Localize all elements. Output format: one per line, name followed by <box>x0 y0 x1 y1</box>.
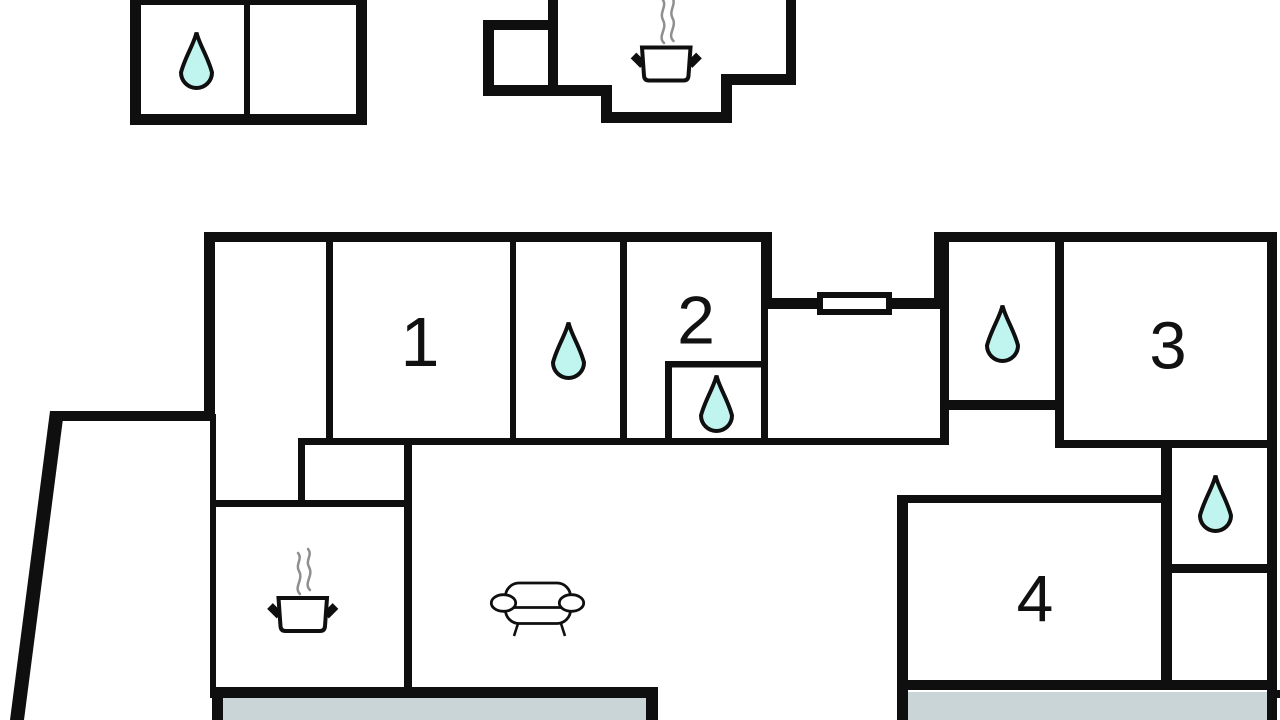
svg-text:2: 2 <box>677 283 715 359</box>
svg-text:1: 1 <box>401 303 440 381</box>
svg-text:4: 4 <box>1017 562 1054 636</box>
svg-text:3: 3 <box>1149 309 1186 384</box>
